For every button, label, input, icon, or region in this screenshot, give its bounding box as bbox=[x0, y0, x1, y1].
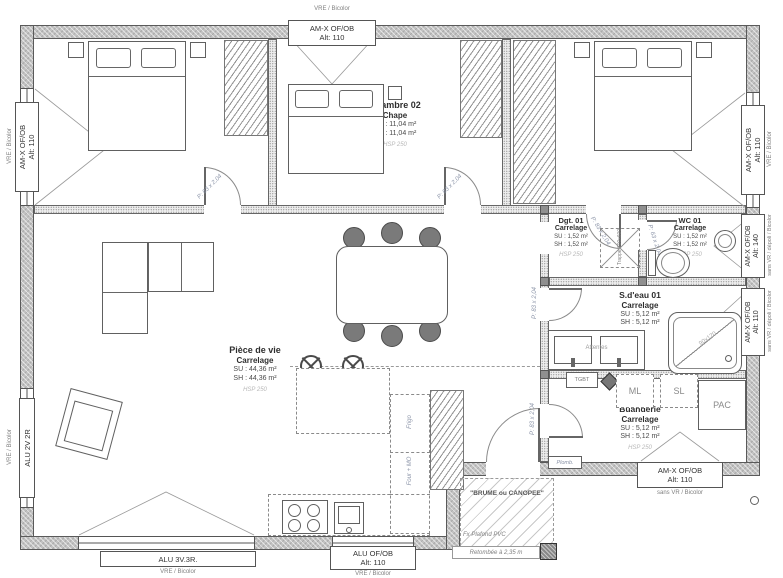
window-alt: Alt: 110 bbox=[320, 33, 345, 42]
window-left-living-note: VRE / Bicolor bbox=[7, 407, 13, 487]
nightstand bbox=[574, 42, 590, 58]
tgbt-box: TGBT bbox=[566, 372, 598, 388]
wardrobe-chambre02 bbox=[460, 40, 502, 138]
toilet-tank bbox=[648, 250, 656, 276]
bed-fold-line bbox=[89, 76, 185, 77]
room-finish: Carrelage bbox=[541, 225, 601, 234]
pillow bbox=[339, 90, 373, 108]
room-finish: Carrelage bbox=[596, 415, 684, 425]
room-su: SU : 1,52 m² bbox=[660, 234, 720, 242]
window-bottom-buanderie-label: AM-X OF/OB Alt: 110 bbox=[637, 462, 723, 488]
window-name: AM-X OF/OB bbox=[745, 225, 753, 266]
door-leaf-entrance bbox=[538, 408, 540, 462]
wardrobe-chambre01 bbox=[224, 40, 268, 136]
window-right-ch03-label: AM-X OF/OB Alt: 110 bbox=[741, 105, 765, 195]
dining-chair bbox=[381, 222, 403, 244]
window-alt: Alt: 110 bbox=[753, 310, 761, 333]
pillow bbox=[602, 48, 637, 68]
kitchen-hatched-unit bbox=[430, 390, 464, 490]
sofa-cushion-line bbox=[103, 292, 147, 293]
room-name: Dgt. 01 bbox=[541, 216, 601, 225]
terrace-post bbox=[540, 543, 557, 560]
room-su: SU : 5,12 m² bbox=[596, 425, 684, 434]
door-leaf-sdeau bbox=[549, 288, 582, 290]
handwash-basin-inner bbox=[718, 234, 732, 248]
window-top-label: AM-X OF/OB Alt: 110 bbox=[288, 20, 376, 46]
room-finish: Carrelage bbox=[660, 225, 720, 234]
downpipe-circle bbox=[750, 496, 759, 505]
terrace-drop-label: Retombée à 2,35 m bbox=[452, 546, 540, 559]
dining-chair bbox=[381, 325, 403, 347]
toilet-bowl-inner bbox=[661, 252, 685, 274]
window-name: AM-X OF/OB bbox=[18, 125, 27, 169]
room-sh: SH : 1,52 m² bbox=[541, 242, 601, 250]
sofa-cushion-line bbox=[148, 243, 149, 291]
window-name: ALU 3V.3R. bbox=[159, 555, 198, 564]
ceiling-axis-line bbox=[290, 366, 540, 367]
window-bottom-kitchen-note: VRE / Bicolor bbox=[330, 571, 416, 577]
vanity-label: Attentes bbox=[548, 345, 645, 351]
oven-label: Four + MO bbox=[407, 441, 413, 501]
room-name: Pièce de vie bbox=[200, 345, 310, 356]
nightstand bbox=[190, 42, 206, 58]
room-name: S.d'eau 01 bbox=[595, 290, 685, 301]
pillow bbox=[96, 48, 131, 68]
pillow bbox=[295, 90, 329, 108]
window-bottom-living bbox=[78, 536, 255, 550]
burner-icon bbox=[307, 504, 320, 517]
terrace-ceiling-label: Fx Plafond PVC bbox=[463, 532, 533, 538]
window-name: AM-X OF/OB bbox=[744, 128, 753, 172]
room-hsp: HSP 250 bbox=[200, 387, 310, 395]
heat-pump-box: PAC bbox=[698, 380, 746, 430]
room-sh: SH : 44,36 m² bbox=[200, 375, 310, 384]
tap-icon bbox=[617, 358, 621, 367]
faucet-icon bbox=[346, 527, 352, 533]
kitchen-sink-bowl bbox=[338, 506, 360, 524]
terrace-title: "BRUME ou CANOPEE" bbox=[462, 490, 552, 497]
floor-plan: VRE / Bicolor AM-X OF/OB Alt: 110 VRE / … bbox=[0, 0, 783, 578]
door-leaf-buanderie bbox=[549, 436, 583, 438]
ceiling-hatch-label: Trappe 600x600 bbox=[617, 210, 623, 284]
window-left-ch01-label: AM-X OF/OB Alt: 110 bbox=[15, 102, 39, 192]
nightstand bbox=[388, 86, 402, 100]
dryer-box: SL bbox=[660, 374, 698, 408]
window-alt: Alt: 110 bbox=[27, 135, 36, 160]
room-finish: Carrelage bbox=[200, 356, 310, 366]
window-right-sdeau-note: sans VR / dépoli / Bicolor bbox=[767, 273, 773, 369]
door-label-sdeau: P: 83 x 2,04 bbox=[532, 272, 538, 334]
window-name: AM-X OF/OB bbox=[745, 301, 753, 342]
sofa-left-section bbox=[102, 242, 148, 334]
window-top-note: VRE / Bicolor bbox=[287, 6, 377, 12]
room-label-dgt01: Dgt. 01 Carrelage SU : 1,52 m² SH : 1,52… bbox=[541, 216, 601, 260]
window-name: AM-X OF/OB bbox=[310, 24, 354, 33]
tap-icon bbox=[571, 358, 575, 367]
window-left-ch01-note: VRE / Bicolor bbox=[7, 106, 13, 186]
room-su: SU : 44,36 m² bbox=[200, 366, 310, 375]
window-name: AM-X OF/OB bbox=[658, 466, 702, 475]
dining-table bbox=[336, 246, 448, 324]
window-alt: Alt: 110 bbox=[361, 558, 386, 567]
pillow bbox=[141, 48, 176, 68]
window-right-wc-label: AM-X OF/OB Alt: 140 bbox=[741, 214, 765, 278]
shower-drain-icon bbox=[725, 355, 732, 362]
wardrobe-chambre03 bbox=[513, 40, 556, 204]
kitchen-island bbox=[296, 368, 390, 434]
room-finish: Carrelage bbox=[595, 301, 685, 311]
sofa-cushion-line bbox=[181, 243, 182, 291]
burner-icon bbox=[307, 519, 320, 532]
burner-icon bbox=[288, 519, 301, 532]
window-bottom-buanderie-note: sans VR / Bicolor bbox=[637, 490, 723, 496]
window-bottom-living-label: ALU 3V.3R. bbox=[100, 551, 256, 567]
room-hsp: HSP 250 bbox=[596, 445, 684, 453]
window-right-sdeau-label: AM-X OF/OB Alt: 110 bbox=[741, 288, 765, 356]
pillow bbox=[647, 48, 682, 68]
room-label-piece-de-vie: Pièce de vie Carrelage SU : 44,36 m² SH … bbox=[200, 345, 310, 394]
burner-icon bbox=[288, 504, 301, 517]
nightstand bbox=[696, 42, 712, 58]
window-right-ch03-note: VRE / Bicolor bbox=[767, 104, 773, 194]
window-name: ALU OF/OB bbox=[353, 549, 393, 558]
window-alt: Alt: 110 bbox=[668, 475, 693, 484]
nightstand bbox=[68, 42, 84, 58]
plumbing-box: Plomb. bbox=[548, 456, 582, 469]
room-hsp: HSP 250 bbox=[541, 252, 601, 260]
room-name: WC 01 bbox=[660, 216, 720, 225]
window-alt: Alt: 110 bbox=[753, 138, 762, 163]
room-su: SU : 1,52 m² bbox=[541, 234, 601, 242]
window-alt: Alt: 140 bbox=[753, 234, 761, 258]
room-label-buanderie: Buanderie Carrelage SU : 5,12 m² SH : 5,… bbox=[596, 404, 684, 453]
bed-fold-line bbox=[289, 116, 383, 117]
window-bottom-kitchen-label: ALU OF/OB Alt: 110 bbox=[330, 546, 416, 570]
window-left-living-label: ALU 2V 2R bbox=[19, 398, 35, 498]
bed-fold-line bbox=[595, 76, 691, 77]
room-sh: SH : 5,12 m² bbox=[596, 433, 684, 442]
window-name: ALU 2V 2R bbox=[23, 429, 32, 467]
washing-machine-box: ML bbox=[616, 374, 654, 408]
window-bottom-living-note: VRE / Bicolor bbox=[100, 569, 256, 575]
